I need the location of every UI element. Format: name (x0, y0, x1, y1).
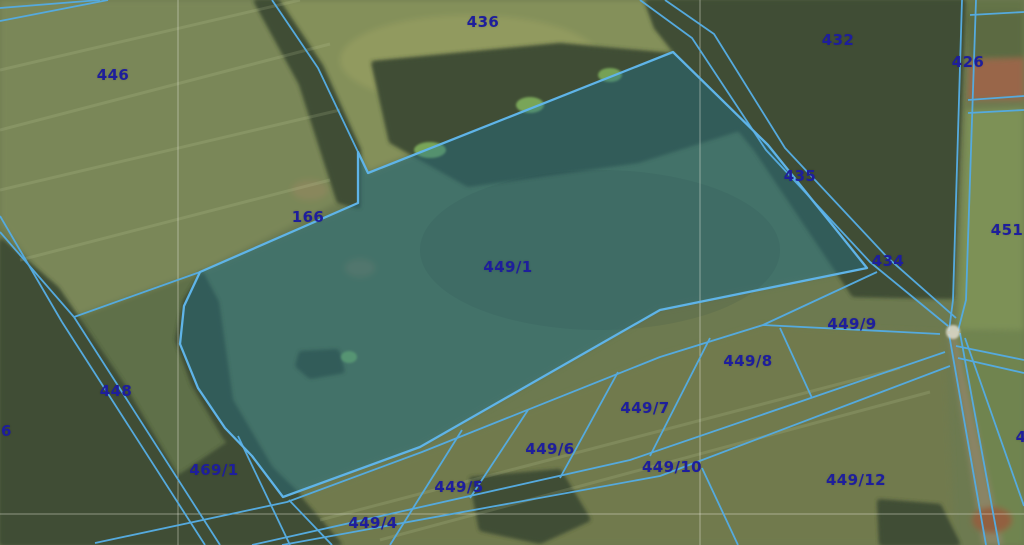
cadastral-map[interactable]: 446436432426435451434166449/144876469/14… (0, 0, 1024, 545)
track-junction (946, 325, 960, 339)
orthophoto-layer (0, 0, 1024, 545)
